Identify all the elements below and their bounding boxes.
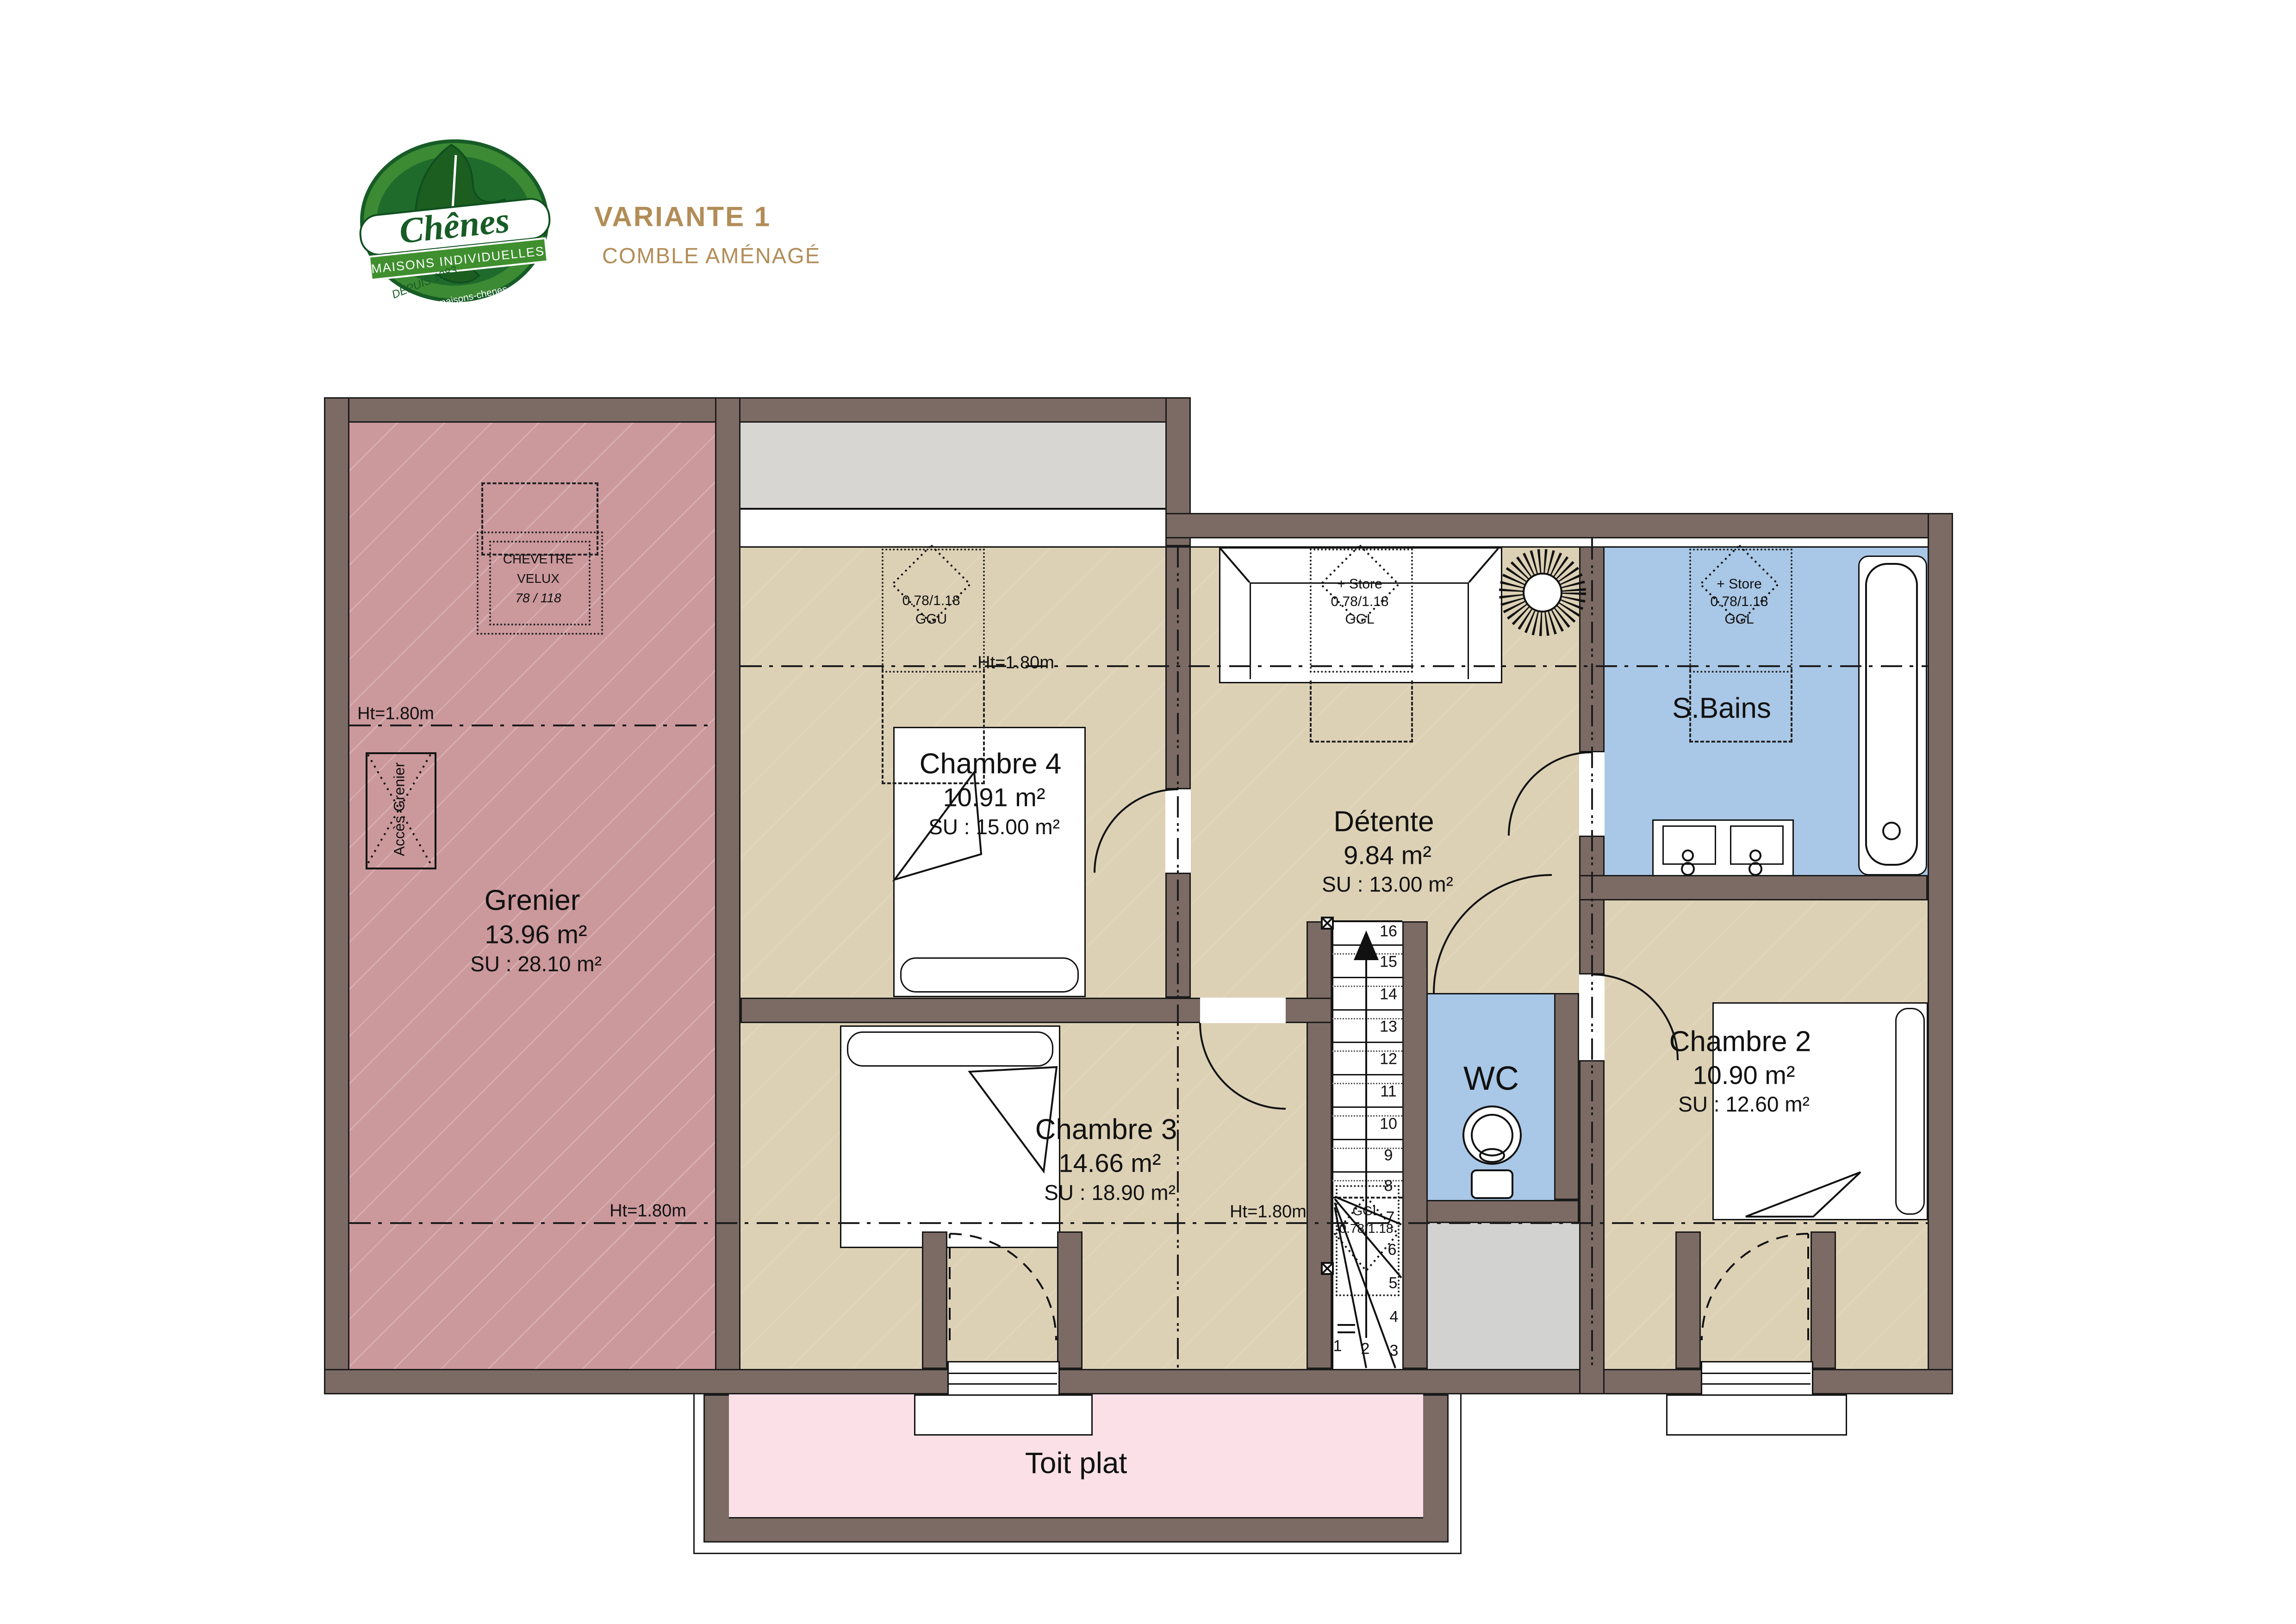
vanity-sink-left xyxy=(1662,825,1716,865)
page-subtitle: COMBLE AMÉNAGÉ xyxy=(602,243,821,269)
ht-label-center-bottom: Ht=1.80m xyxy=(1230,1202,1307,1222)
velux-sbains-type: GGL xyxy=(1724,612,1754,627)
stair-top-line xyxy=(1332,920,1402,922)
ht-line-main-top xyxy=(740,665,1928,667)
storage-inner-left xyxy=(1250,582,1251,679)
velux-sbains-store: + Store xyxy=(1717,576,1762,592)
chambre4-area: 10.91 m² xyxy=(943,782,1045,812)
ht-label-chambre4: Ht=1.80m xyxy=(977,653,1054,673)
velux-ggu-type: GGU xyxy=(915,612,947,627)
stair-number: 6 xyxy=(1388,1241,1397,1259)
grenier-name: Grenier xyxy=(485,884,580,917)
page-title: VARIANTE 1 xyxy=(594,201,771,233)
dormer-window-ch3 xyxy=(947,1361,1060,1397)
chevetre-label-2: VELUX xyxy=(517,571,560,586)
chambre4-name: Chambre 4 xyxy=(920,748,1062,781)
axis-line-vert-1 xyxy=(1177,546,1179,1369)
wall-top-right xyxy=(1165,513,1953,538)
dormer-window-ch2-line1 xyxy=(1701,1373,1811,1374)
stair-number: 10 xyxy=(1380,1115,1397,1133)
stair-number: 14 xyxy=(1380,986,1397,1004)
stair-number: 15 xyxy=(1380,953,1397,971)
velux-detente-ext xyxy=(1310,681,1413,743)
ht-label-grenier-bottom: Ht=1.80m xyxy=(610,1201,686,1221)
stair-number: 13 xyxy=(1380,1018,1397,1036)
chambre2-area: 10.90 m² xyxy=(1693,1060,1795,1090)
detente-su: SU : 13.00 m² xyxy=(1322,872,1453,897)
wall-wc-right xyxy=(1554,993,1579,1200)
chevetre-label-3: 78 / 118 xyxy=(515,591,561,606)
dormer-stub-ch3-right xyxy=(1057,1231,1083,1369)
wall-stair-right xyxy=(1402,921,1428,1369)
velux-sbains-box xyxy=(1689,549,1792,673)
wall-wc-bottom xyxy=(1402,1200,1579,1223)
axis-line-vert-2 xyxy=(1591,538,1593,1369)
wall-right xyxy=(1928,513,1953,1394)
storage-inner-right xyxy=(1468,582,1469,679)
roof-area-bottom-line xyxy=(740,508,1165,510)
stair-number: 2 xyxy=(1361,1340,1370,1358)
grenier-area: 13.96 m² xyxy=(485,919,587,949)
wc-top-line xyxy=(1428,993,1554,994)
bathtub xyxy=(1858,556,1927,875)
velux-sbains-size: 0.78/1.18 xyxy=(1710,594,1768,610)
lower-roof-area xyxy=(740,423,1165,509)
wall-grenier-left xyxy=(324,397,349,1394)
chenes-logo: Chênes MAISONS INDIVIDUELLES DEPUIS 1983… xyxy=(356,137,555,308)
ht-line-bottom xyxy=(349,1222,1928,1224)
bed-chambre2-pillow xyxy=(1895,1008,1925,1215)
dormer-window-ch2 xyxy=(1701,1361,1813,1397)
wall-below-sbains xyxy=(1579,875,1928,900)
chambre4-su: SU : 15.00 m² xyxy=(928,814,1060,839)
stair-number: 1 xyxy=(1333,1337,1342,1355)
dormer-sill-ch2 xyxy=(1666,1394,1847,1436)
dormer-window-ch2-line2 xyxy=(1701,1383,1811,1385)
dormer-sill-ch3 xyxy=(914,1394,1093,1436)
chambre3-area: 14.66 m² xyxy=(1059,1148,1161,1178)
dormer-stub-ch3-left xyxy=(922,1231,947,1369)
chambre2-su: SU : 12.60 m² xyxy=(1678,1092,1810,1117)
stair-number: 16 xyxy=(1380,923,1397,941)
velux-detente-size: 0.78/1.18 xyxy=(1331,594,1388,610)
detente-name: Détente xyxy=(1333,806,1434,838)
stair-number: 12 xyxy=(1380,1050,1397,1068)
chambre2-name: Chambre 2 xyxy=(1669,1025,1811,1058)
chevetre-label-1: CHEVETRE xyxy=(503,552,573,567)
chambre3-name: Chambre 3 xyxy=(1035,1113,1177,1146)
wall-top-left xyxy=(324,397,1191,423)
velux-detente-box xyxy=(1310,549,1413,673)
acces-grenier-label: Accès Grenier xyxy=(391,762,408,856)
stair-number: 4 xyxy=(1390,1308,1399,1326)
floor-plan-page: { "logo": { "brand": "Chênes", "tagline"… xyxy=(0,0,2296,1624)
toit-plat-name: Toit plat xyxy=(1025,1446,1127,1480)
chambre3-su: SU : 18.90 m² xyxy=(1044,1180,1176,1205)
ht-label-grenier-top: Ht=1.80m xyxy=(357,704,434,724)
stair-number: 5 xyxy=(1389,1274,1398,1293)
stair-number: 9 xyxy=(1384,1147,1393,1165)
bed-chambre4-pillow xyxy=(900,957,1079,993)
stair-velux-label-size: 0.78/1.18 xyxy=(1339,1221,1394,1236)
velux-detente-store: + Store xyxy=(1337,576,1382,592)
detente-area: 9.84 m² xyxy=(1344,840,1431,870)
stair-number: 11 xyxy=(1380,1083,1396,1101)
ht-line-grenier-top xyxy=(349,725,715,726)
door-gap-chambre3 xyxy=(1200,998,1286,1023)
sbains-name: S.Bains xyxy=(1672,692,1771,725)
dormer-stub-ch2-right xyxy=(1811,1231,1836,1369)
stair-number: 8 xyxy=(1384,1177,1393,1195)
dormer-window-ch3-line1 xyxy=(947,1373,1057,1374)
vanity-sink-right xyxy=(1730,825,1784,865)
velux-ggu-size: 0.78/1.18 xyxy=(902,593,960,609)
bed-chambre3-pillow xyxy=(847,1031,1053,1067)
wall-grenier-divider xyxy=(715,397,740,1394)
stair-velux-label-ggl: GGL xyxy=(1352,1204,1380,1218)
grenier-su: SU : 28.10 m² xyxy=(470,951,602,976)
velux-ggu-box xyxy=(882,549,985,673)
stair-number: 3 xyxy=(1390,1342,1399,1360)
dormer-stub-ch2-left xyxy=(1675,1231,1701,1369)
velux-detente-type: GGL xyxy=(1345,612,1374,627)
dormer-window-ch3-line2 xyxy=(947,1383,1057,1385)
wall-stair-left xyxy=(1307,921,1332,1369)
wc-name: WC xyxy=(1463,1060,1519,1098)
landing-floor xyxy=(1428,1223,1579,1369)
